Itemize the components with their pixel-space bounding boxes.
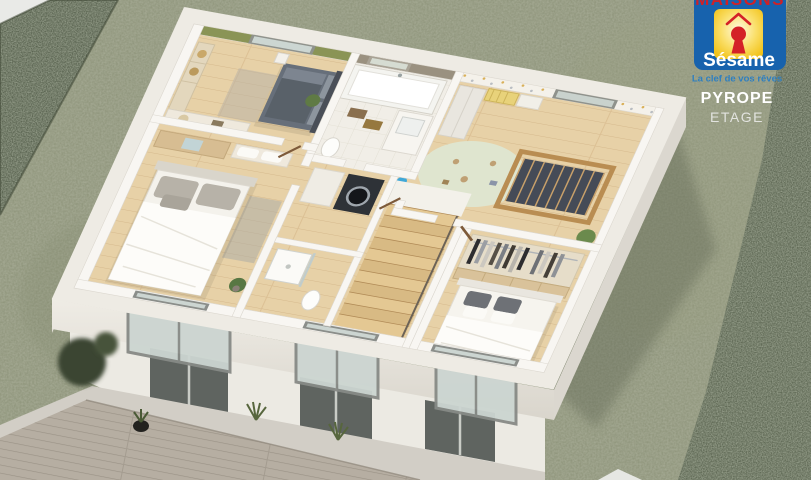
brand-name-text: Sésame (703, 50, 775, 71)
floorplan-3d-scene: MAISONS Sésame La clef de vos rêves PYRO… (0, 0, 811, 480)
bush (94, 332, 118, 356)
floorplan-render-page: MAISONS Sésame La clef de vos rêves PYRO… (0, 0, 811, 480)
logo-block: MAISONS Sésame La clef de vos rêves PYRO… (692, 0, 786, 125)
brand-top-text: MAISONS (695, 0, 785, 9)
plan-level-label: ETAGE (710, 109, 764, 125)
brand-tagline-text: La clef de vos rêves (692, 74, 782, 85)
plan-model-name: PYROPE (701, 90, 774, 107)
